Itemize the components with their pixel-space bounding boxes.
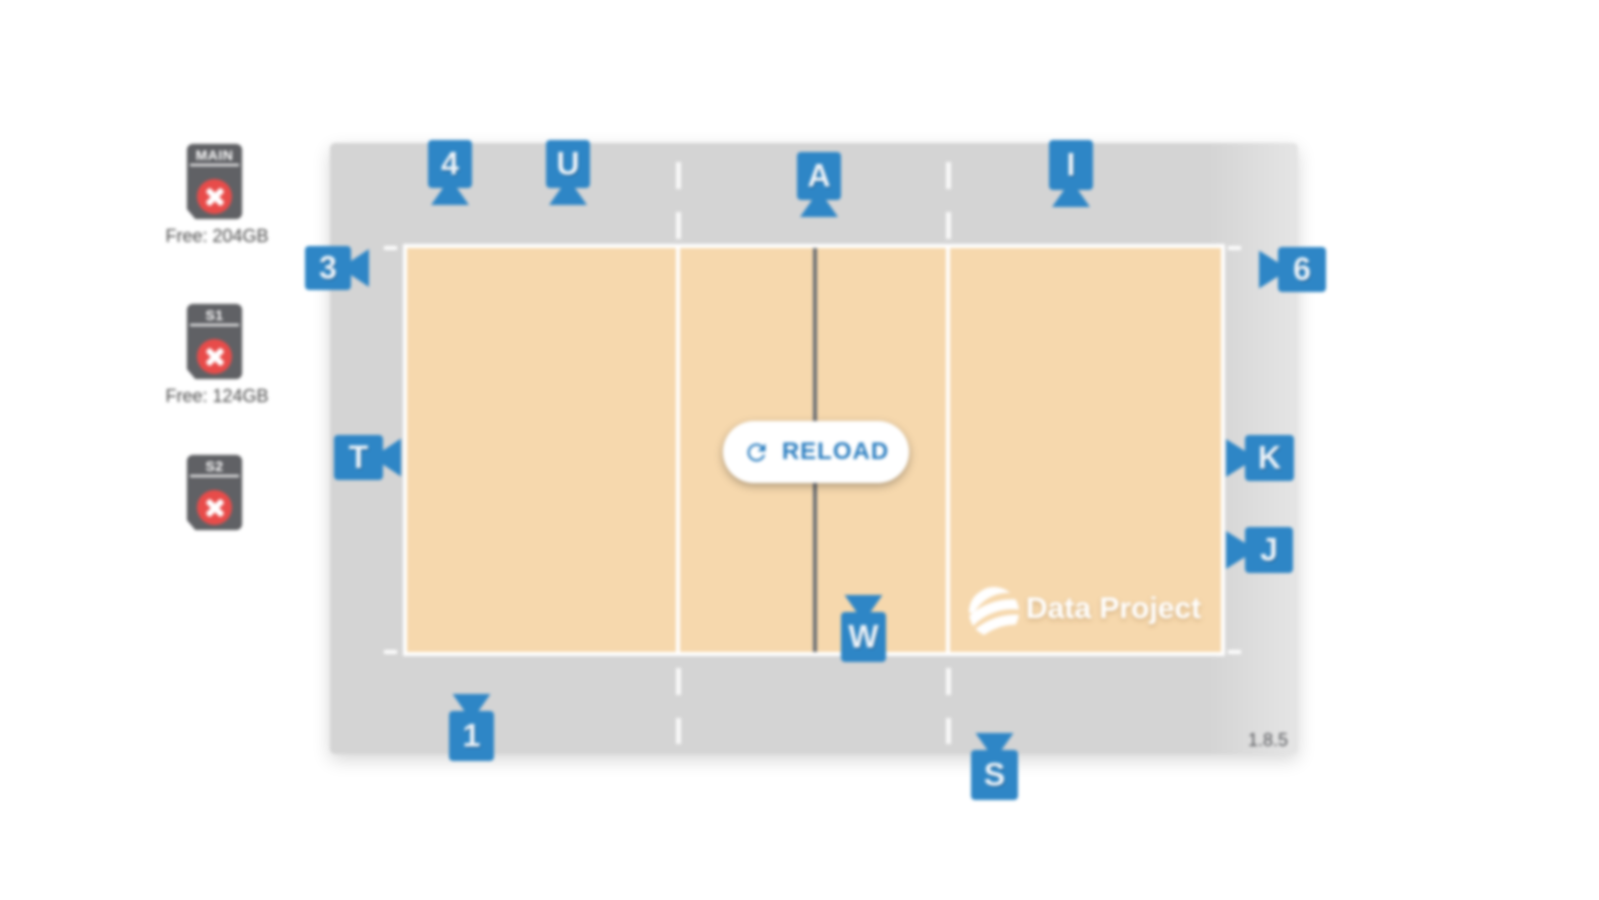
svg-text:4: 4 — [441, 146, 459, 182]
svg-text:W: W — [848, 619, 879, 655]
svg-text:U: U — [556, 146, 579, 182]
svg-text:K: K — [1258, 440, 1281, 476]
svg-text:T: T — [349, 439, 369, 475]
svg-text:6: 6 — [1293, 251, 1311, 287]
svg-text:S: S — [984, 757, 1005, 793]
svg-text:J: J — [1260, 532, 1278, 568]
svg-text:1: 1 — [463, 718, 481, 754]
svg-text:3: 3 — [319, 250, 337, 286]
svg-text:A: A — [807, 158, 830, 194]
svg-text:I: I — [1067, 147, 1076, 183]
